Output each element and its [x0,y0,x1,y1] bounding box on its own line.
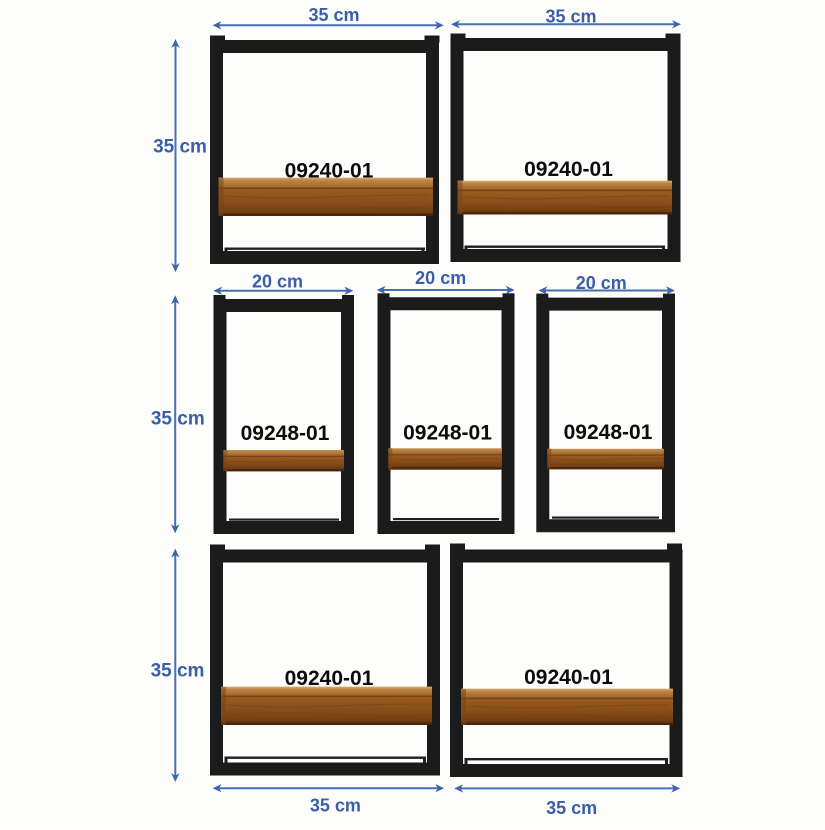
svg-text:09240-01: 09240-01 [285,160,374,183]
svg-text:35 cm: 35 cm [308,5,359,25]
svg-text:35 cm: 35 cm [310,796,361,816]
svg-text:35 cm: 35 cm [151,660,205,681]
svg-text:20 cm: 20 cm [415,268,466,288]
svg-text:35 cm: 35 cm [545,7,596,27]
svg-text:09248-01: 09248-01 [241,422,330,445]
svg-text:35 cm: 35 cm [546,798,597,818]
svg-text:09248-01: 09248-01 [403,422,492,445]
svg-text:35 cm: 35 cm [151,409,205,430]
svg-text:09240-01: 09240-01 [524,158,613,181]
svg-text:09240-01: 09240-01 [524,666,613,689]
svg-text:20 cm: 20 cm [576,273,627,293]
svg-text:35 cm: 35 cm [153,136,207,157]
svg-text:09240-01: 09240-01 [285,667,374,690]
svg-text:20 cm: 20 cm [252,272,303,292]
svg-text:09248-01: 09248-01 [564,421,653,444]
